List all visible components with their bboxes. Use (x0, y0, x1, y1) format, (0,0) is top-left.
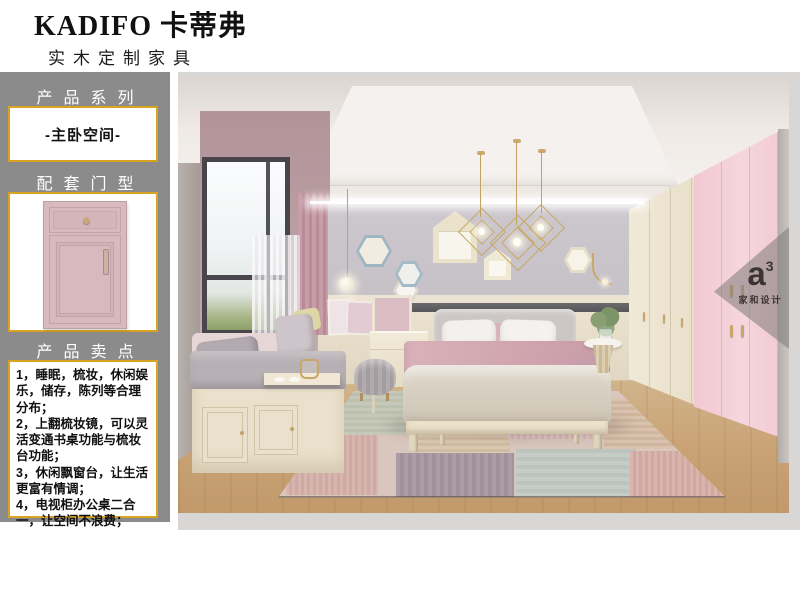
door-type-box (8, 192, 158, 332)
hexagon-shelf-inner (567, 250, 589, 270)
door-lower-panel (49, 235, 121, 324)
catalog-page: KADIFO 卡蒂弗 实木定制家具 产品系列 -主卧空间- 配套门型 产品卖点 … (0, 0, 800, 600)
ball-pendant-lamp (339, 277, 354, 292)
pouf-leg (386, 393, 389, 401)
tea-cup (289, 377, 300, 382)
rug-patch (516, 449, 636, 497)
cabinet-knob (240, 431, 244, 435)
pouf-leg (360, 393, 363, 401)
bed-leg (440, 434, 445, 445)
selling-points-box: 1，睡眠，梳妆，休闲娱乐，储存，陈列等合理分布； 2，上翻梳妆镜，可以灵活变通书… (8, 360, 158, 518)
cabinet-door-image (43, 201, 127, 329)
flip-up-mirror (372, 295, 412, 335)
bed-leg (409, 434, 418, 452)
pouf-stool (354, 359, 396, 395)
wardrobe-handle (643, 312, 645, 321)
pendant-bulb (537, 224, 544, 231)
pendant-mount (477, 151, 485, 155)
selling-point-1: 1，睡眠，梳妆，休闲娱乐，储存，陈列等合理分布； (16, 367, 150, 416)
window-seat-cushion (190, 351, 346, 391)
selling-point-3: 3，休闲飘窗台，让生活更富有情调； (16, 465, 150, 498)
pendant-cord (516, 141, 517, 225)
wardrobe-handle (663, 314, 665, 323)
wardrobe-door-seams (629, 172, 694, 407)
wardrobe-handle (730, 325, 733, 337)
bed-leg (574, 434, 579, 444)
sconce-bulb (602, 279, 608, 285)
wardrobe-handle (681, 318, 683, 327)
cabinet-knob (290, 427, 294, 431)
selling-points-label: 产品卖点 (0, 338, 170, 362)
ball-lamp-cord (347, 189, 348, 279)
selling-point-4: 4，电视柜办公桌二合一，让空间不浪费； (16, 497, 150, 530)
watermark-studio-name: 家和设计 (732, 293, 789, 306)
door-type-label: 配套门型 (0, 170, 170, 194)
pendant-bulb (513, 238, 521, 246)
bed-leg (594, 434, 602, 449)
rug-patch (396, 453, 514, 497)
series-box: -主卧空间- (8, 106, 158, 162)
sidebar: 产品系列 -主卧空间- 配套门型 产品卖点 1，睡眠，梳妆，休闲娱乐，储存，陈列… (0, 72, 170, 522)
door-knob (83, 217, 90, 224)
seat-cabinet-door (202, 407, 248, 463)
house-shelf-inner (489, 261, 506, 276)
series-label: 产品系列 (0, 84, 170, 108)
selling-point-2: 2，上翻梳妆镜，可以灵活变通书桌功能与梳妆台功能； (16, 416, 150, 465)
door-drawer (49, 207, 121, 233)
wardrobe-cream (629, 172, 694, 407)
bedroom-render: a3 家和设计 (178, 77, 789, 513)
watermark-logo: a3 (732, 257, 789, 290)
tea-cup (274, 377, 285, 382)
series-value: -主卧空间- (45, 124, 121, 145)
brand-title: KADIFO 卡蒂弗 (34, 4, 247, 44)
hexagon-shelf-inner (398, 264, 420, 284)
door-handle (103, 249, 109, 275)
pendant-mount (513, 139, 521, 143)
pendant-bulb (478, 228, 485, 235)
bedspread (403, 365, 611, 425)
brand-subtitle: 实木定制家具 (48, 44, 198, 69)
led-cove-light (310, 201, 644, 204)
bed-frame (406, 421, 608, 434)
hexagon-shelf-inner (359, 238, 389, 264)
wire-teapot (300, 359, 319, 379)
photo-frame: a3 家和设计 (170, 72, 800, 530)
wardrobe-handle (741, 325, 744, 337)
window-seat-cabinet (192, 389, 344, 473)
pendant-mount (538, 149, 546, 153)
